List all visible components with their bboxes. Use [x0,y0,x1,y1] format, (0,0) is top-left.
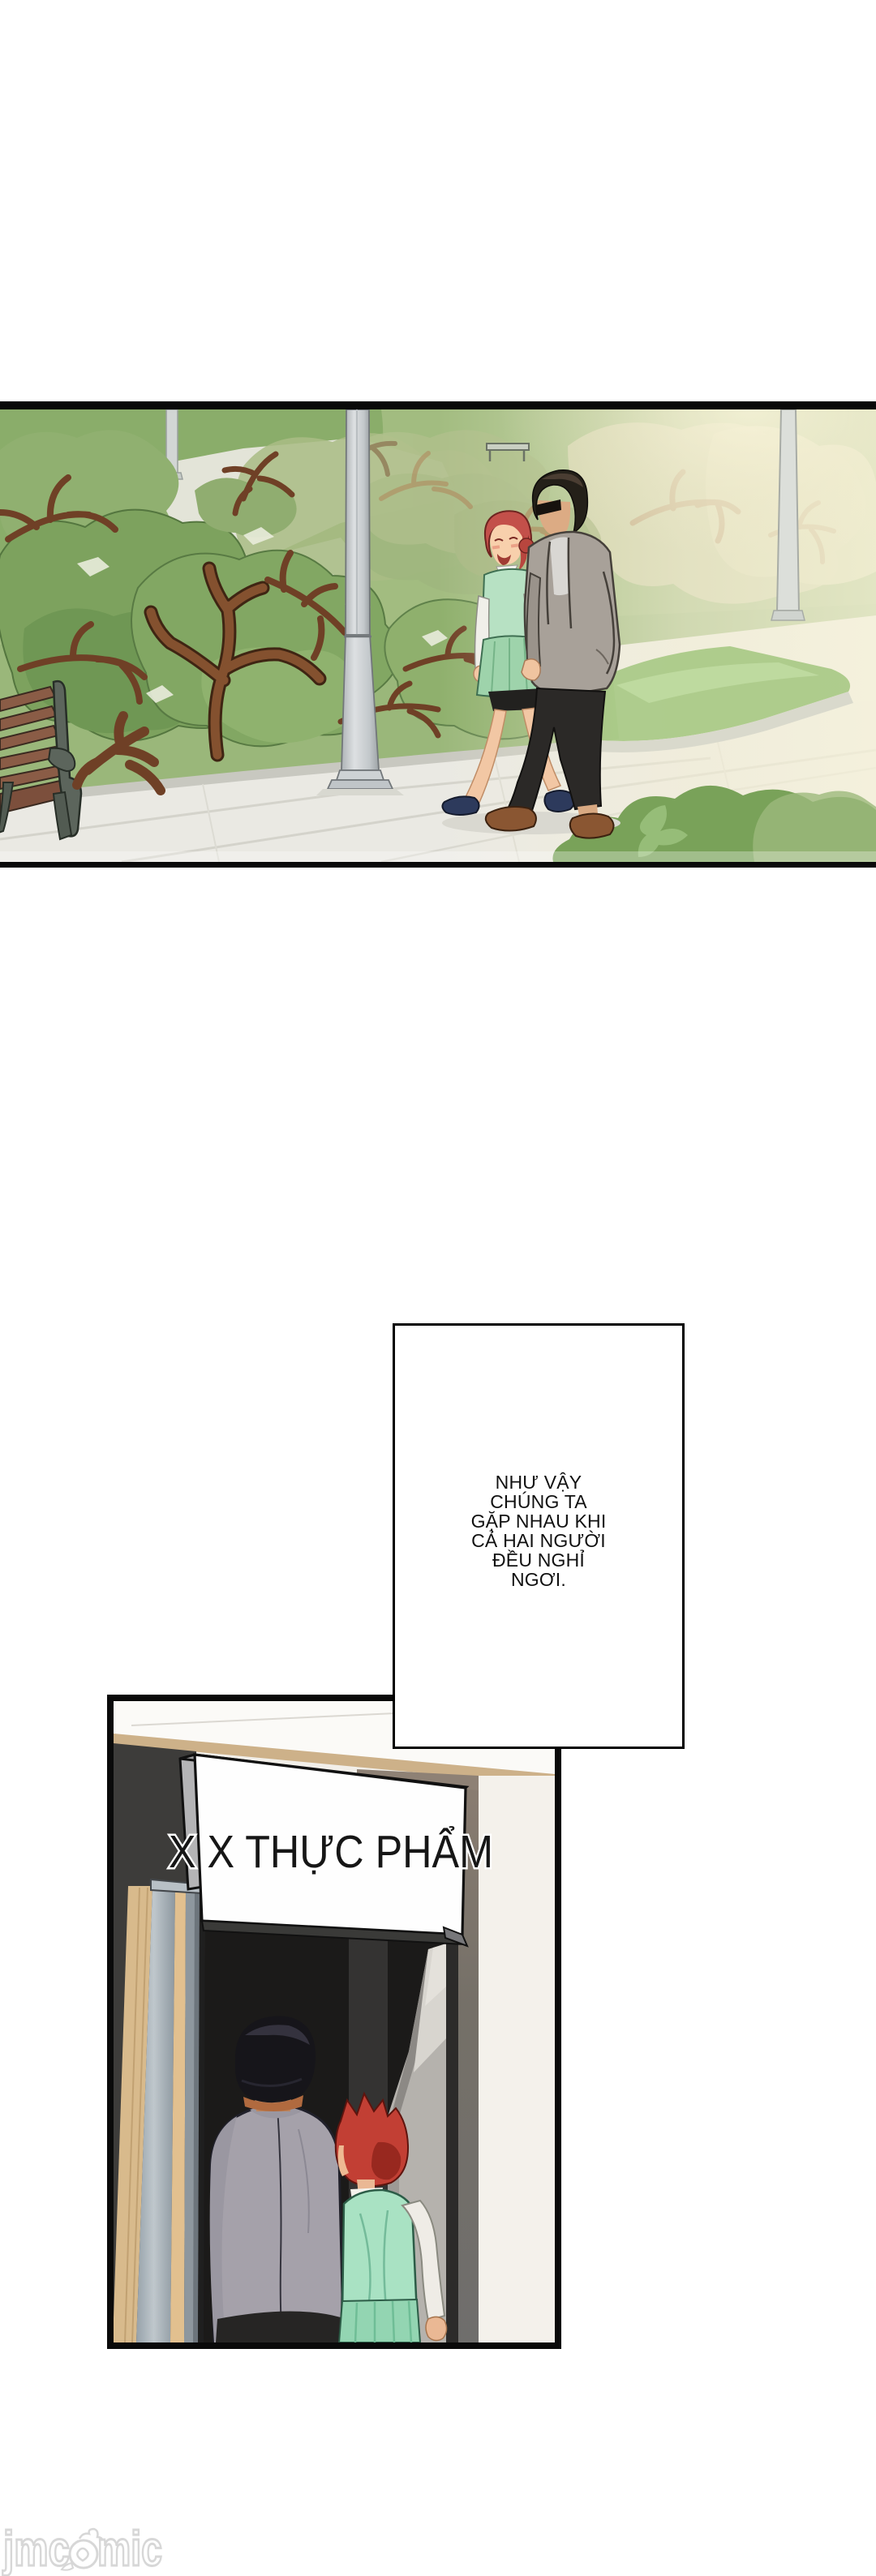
svg-text:mic: mic [97,2527,162,2576]
svg-text:jmc: jmc [2,2527,70,2576]
svg-text:X X THỰC PHẨM: X X THỰC PHẨM [169,1825,493,1878]
